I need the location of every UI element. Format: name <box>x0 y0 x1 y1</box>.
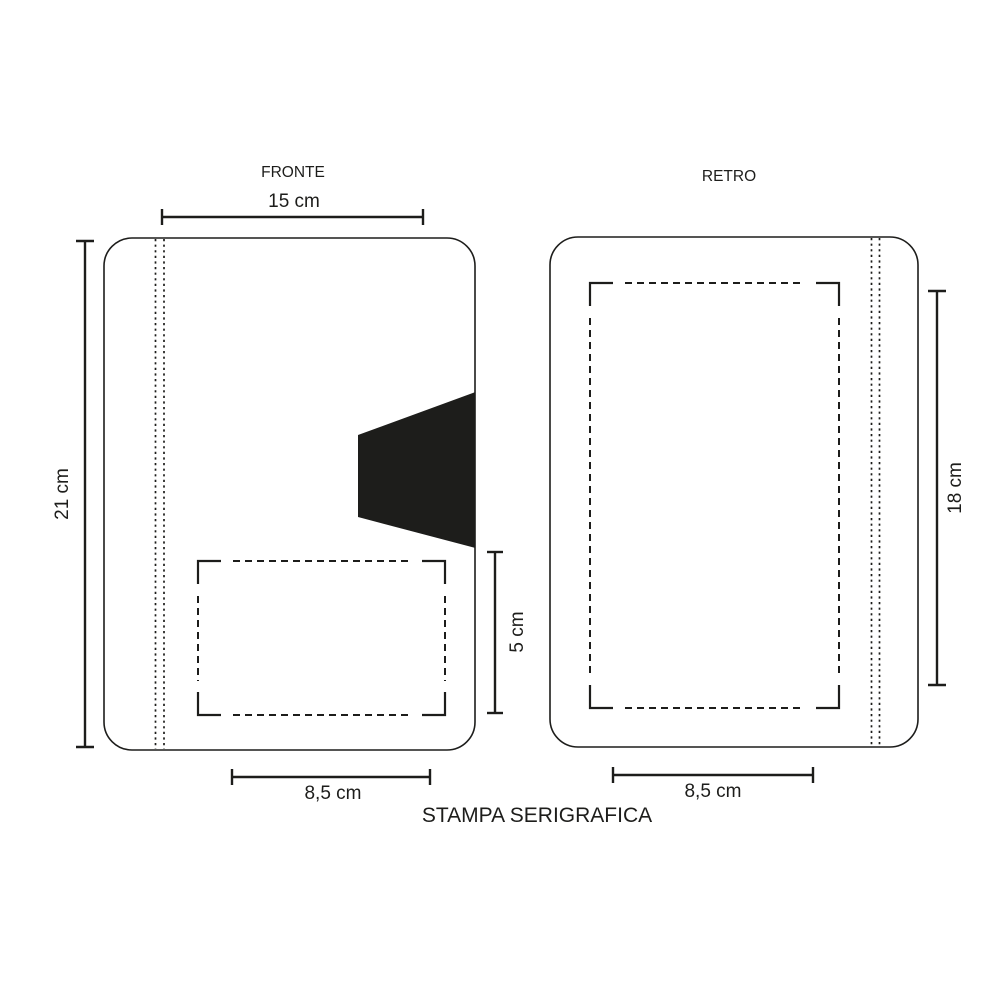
back-print-width-dimension-label: 8,5 cm <box>684 781 741 802</box>
front-print-height-dimension-label: 5 cm <box>507 611 528 652</box>
front-view-title: FRONTE <box>261 164 325 181</box>
front-view: FRONTE 15 cm <box>52 164 528 804</box>
diagram-caption: STAMPA SERIGRAFICA <box>422 804 652 827</box>
front-width-dimension-label: 15 cm <box>268 191 320 212</box>
back-print-height-dimension-label: 18 cm <box>945 462 966 514</box>
front-print-width-dimension: 8,5 cm <box>232 769 430 804</box>
front-width-dimension: 15 cm <box>162 191 423 225</box>
print-spec-diagram: FRONTE 15 cm <box>0 0 1000 1000</box>
front-height-dimension-label: 21 cm <box>52 468 73 520</box>
front-height-dimension: 21 cm <box>52 241 94 747</box>
back-view-title: RETRO <box>702 168 756 185</box>
diagram-canvas: FRONTE 15 cm <box>0 0 1000 1000</box>
back-print-width-dimension: 8,5 cm <box>613 767 813 802</box>
front-print-width-dimension-label: 8,5 cm <box>304 783 361 804</box>
back-print-height-dimension: 18 cm <box>928 291 966 685</box>
front-print-height-dimension: 5 cm <box>487 552 528 713</box>
back-view: RETRO 18 cm <box>550 168 966 802</box>
back-cover-outline <box>550 237 918 747</box>
